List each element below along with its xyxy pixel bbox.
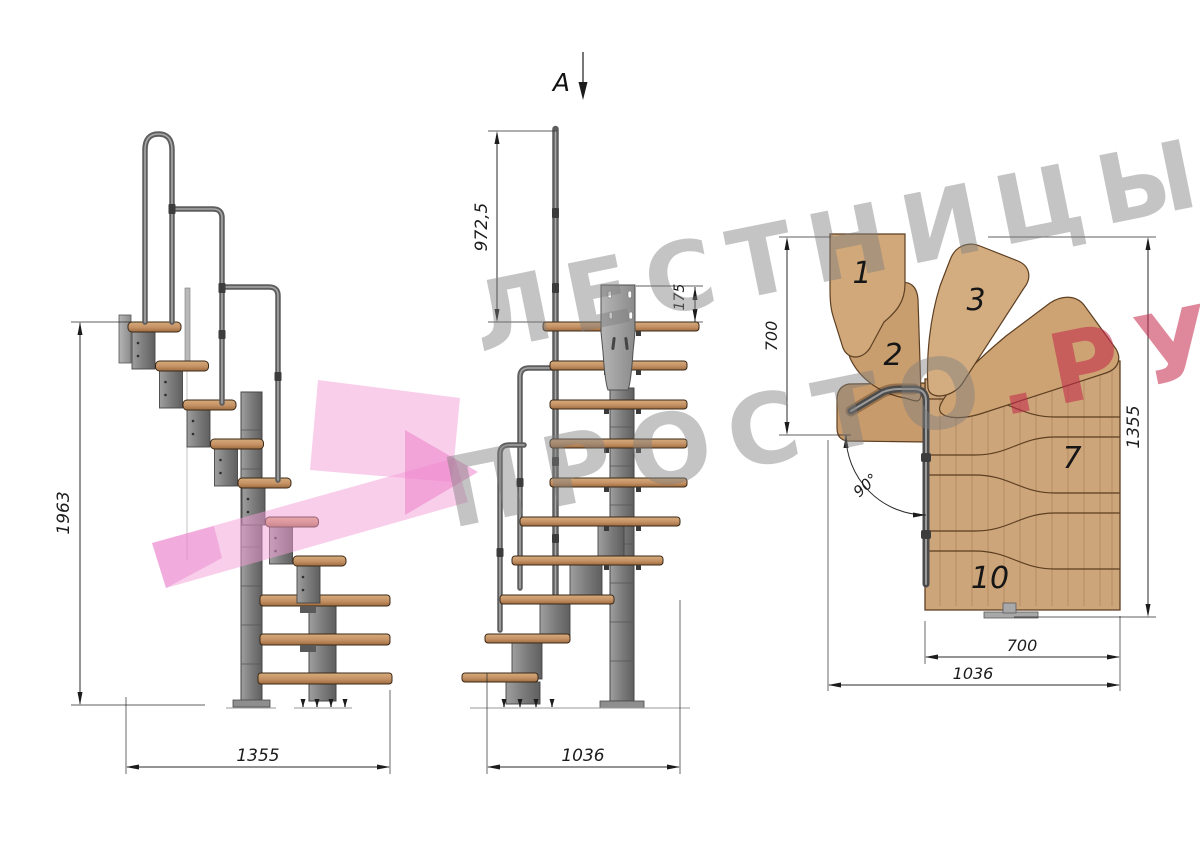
dim-label-front-width: 1036 (561, 746, 604, 766)
dim-label-overall-width: 1036 (953, 664, 994, 683)
tread-label-10: 10 (971, 561, 1009, 596)
tread (260, 634, 390, 645)
tread-label-7: 7 (1062, 441, 1081, 476)
dim-label-upper-depth: 700 (762, 321, 781, 352)
staircase-technical-drawing: 1963 1355 (0, 0, 1200, 849)
dim-label-total-length: 1355 (236, 746, 279, 766)
wall-plate-edge (185, 288, 190, 366)
tread-label-3: 3 (966, 283, 985, 318)
rail-joint (219, 330, 226, 339)
floor-bracket-stem (1003, 603, 1016, 613)
dim-label-handrail-height: 972,5 (472, 203, 492, 252)
column-base-flange (233, 700, 270, 707)
rail-joint (219, 283, 226, 293)
rail-joint (275, 372, 282, 381)
dim-label-turn-angle: 90° (850, 470, 882, 501)
rail-joint (552, 534, 559, 543)
tread-bracket (300, 606, 316, 613)
dim-label-flight-width: 700 (1007, 636, 1038, 655)
rail-joint (552, 208, 559, 218)
tread (260, 595, 390, 606)
rail-joint (921, 530, 931, 539)
dim-label-total-height: 1963 (54, 491, 74, 534)
section-marker: A (551, 52, 588, 100)
tread-bracket (300, 645, 316, 652)
watermark-line2-accent: .РУ (985, 280, 1200, 438)
column-base-flange (600, 701, 644, 708)
tread (258, 673, 392, 684)
drawing-sheet: 1963 1355 (0, 0, 1200, 849)
section-label: A (551, 68, 570, 97)
rail-joint (169, 204, 176, 214)
rail-joint (497, 548, 504, 557)
